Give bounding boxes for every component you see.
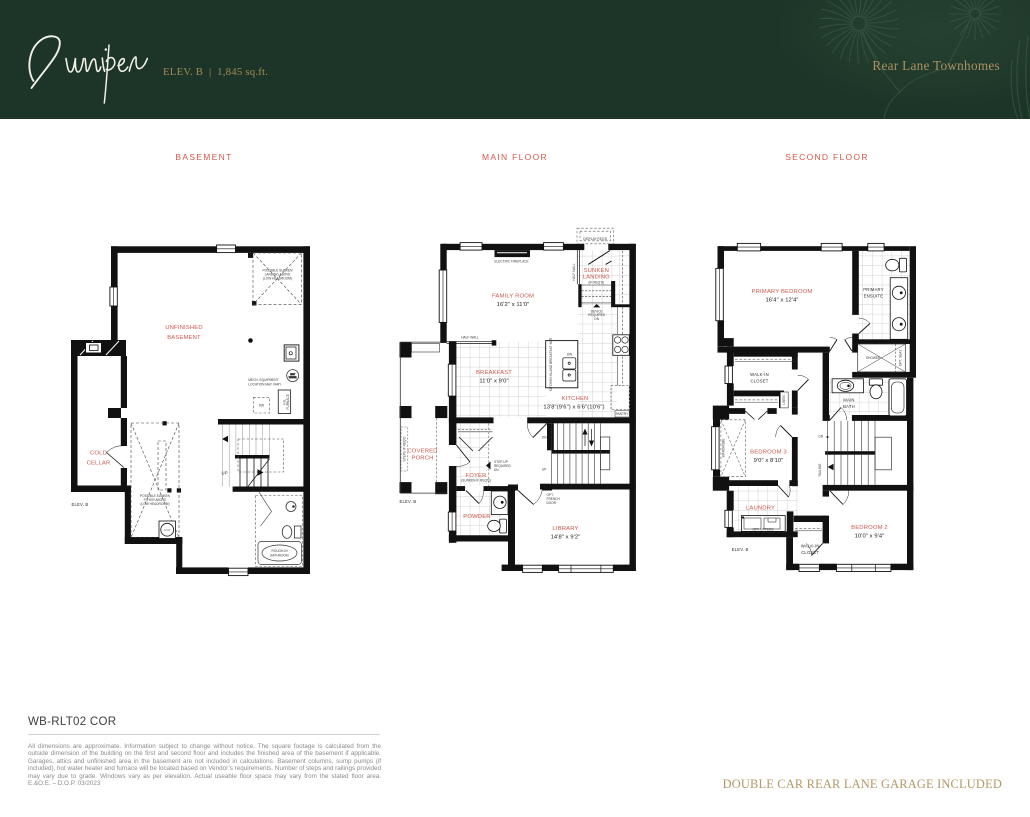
svg-text:KITCHEN: KITCHEN <box>562 396 589 402</box>
svg-text:HALF WALL: HALF WALL <box>461 336 479 340</box>
svg-text:10'0" x 9'4": 10'0" x 9'4" <box>855 534 885 540</box>
svg-text:PORCH: PORCH <box>411 456 433 462</box>
svg-text:STEPS IF REQ'D: STEPS IF REQ'D <box>403 436 407 462</box>
svg-text:BEDROOM 2: BEDROOM 2 <box>851 525 888 531</box>
svg-text:COVERED: COVERED <box>407 449 437 455</box>
svg-text:LIBRARY: LIBRARY <box>552 526 578 532</box>
svg-text:BATHROOM: BATHROOM <box>270 554 289 558</box>
svg-text:ELEV. B: ELEV. B <box>732 547 749 552</box>
svg-text:(IF REQ'D): (IF REQ'D) <box>588 280 604 284</box>
svg-text:9'0" x 8'10": 9'0" x 8'10" <box>754 458 784 464</box>
svg-text:11'0" x 9'0": 11'0" x 9'0" <box>479 379 508 385</box>
svg-text:DW: DW <box>567 352 572 356</box>
svg-text:13'8"(9'6") x 6'6"(10'6"): 13'8"(9'6") x 6'6"(10'6") <box>543 405 604 411</box>
svg-text:UP: UP <box>222 471 228 476</box>
svg-text:FURNACE: FURNACE <box>286 394 290 409</box>
svg-text:BEDROOM 3: BEDROOM 3 <box>750 450 787 456</box>
svg-text:DN: DN <box>819 435 824 439</box>
svg-text:POWDER: POWDER <box>463 514 490 520</box>
svg-text:ENSUITE: ENSUITE <box>864 294 884 299</box>
svg-text:COLD: COLD <box>90 451 107 457</box>
svg-text:(LOW HEADROOM): (LOW HEADROOM) <box>140 502 169 506</box>
svg-text:ROUGH-IN: ROUGH-IN <box>271 549 288 553</box>
svg-text:CLOSET: CLOSET <box>751 379 769 384</box>
svg-text:SUNKEN: SUNKEN <box>584 268 609 274</box>
svg-text:WALK-IN: WALK-IN <box>801 544 820 549</box>
svg-text:BATH: BATH <box>843 404 855 409</box>
svg-text:OPT. SEAT: OPT. SEAT <box>899 350 903 366</box>
svg-text:PANTRY: PANTRY <box>616 412 630 416</box>
svg-text:SHOWER: SHOWER <box>866 356 881 360</box>
svg-text:UP: UP <box>542 468 546 472</box>
svg-text:KITCHEN ISLAND BREAKFAST BAR: KITCHEN ISLAND BREAKFAST BAR <box>549 337 553 391</box>
svg-text:CLOSET: CLOSET <box>801 550 819 555</box>
svg-text:(LOW HEADROOM): (LOW HEADROOM) <box>263 277 292 281</box>
svg-text:LAUNDRY: LAUNDRY <box>746 506 775 512</box>
svg-text:SUMP: SUMP <box>164 530 171 532</box>
svg-text:WARDROBE: WARDROBE <box>722 439 726 458</box>
svg-text:16'4" x 12'4": 16'4" x 12'4" <box>765 298 798 304</box>
svg-text:BREAKFAST: BREAKFAST <box>476 370 512 376</box>
svg-text:DOOR: DOOR <box>547 501 557 505</box>
svg-text:ELEV. B: ELEV. B <box>400 499 417 504</box>
svg-text:LOCATION MAY VARY: LOCATION MAY VARY <box>248 382 282 386</box>
svg-text:PRIMARY BEDROOM: PRIMARY BEDROOM <box>752 289 813 295</box>
svg-text:HOT: HOT <box>290 374 295 376</box>
svg-text:14'8" x 9'2": 14'8" x 9'2" <box>551 535 581 541</box>
svg-text:DN: DN <box>494 468 499 472</box>
svg-text:DISPLAY REQ'D: DISPLAY REQ'D <box>583 237 608 241</box>
svg-text:CELLAR: CELLAR <box>87 461 111 467</box>
svg-text:MECH. EQUIPMENT: MECH. EQUIPMENT <box>248 378 278 382</box>
svg-text:DW: DW <box>259 404 264 408</box>
svg-text:PRIMARY: PRIMARY <box>863 287 883 292</box>
svg-text:RAILING: RAILING <box>818 463 822 476</box>
svg-text:UNFINISHED: UNFINISHED <box>165 325 203 331</box>
svg-text:BASEMENT: BASEMENT <box>167 335 201 341</box>
svg-text:LINEN: LINEN <box>782 395 786 405</box>
svg-text:DN: DN <box>594 317 599 321</box>
svg-text:16'2" x 11'0": 16'2" x 11'0" <box>497 302 530 308</box>
svg-text:ELECTRIC FIREPLACE: ELECTRIC FIREPLACE <box>494 260 528 264</box>
svg-text:MAIN: MAIN <box>843 398 854 403</box>
svg-text:(SUNKEN IF REQ'D): (SUNKEN IF REQ'D) <box>461 479 491 483</box>
svg-text:ELEV. B: ELEV. B <box>72 502 89 507</box>
svg-text:WALK-IN: WALK-IN <box>750 372 769 377</box>
svg-text:FAMILY ROOM: FAMILY ROOM <box>492 294 534 300</box>
svg-text:OPT. UPPERS: OPT. UPPERS <box>752 527 773 531</box>
svg-text:HALF WALL: HALF WALL <box>572 263 576 281</box>
svg-text:WATER: WATER <box>289 376 297 379</box>
svg-text:DN: DN <box>542 436 547 440</box>
